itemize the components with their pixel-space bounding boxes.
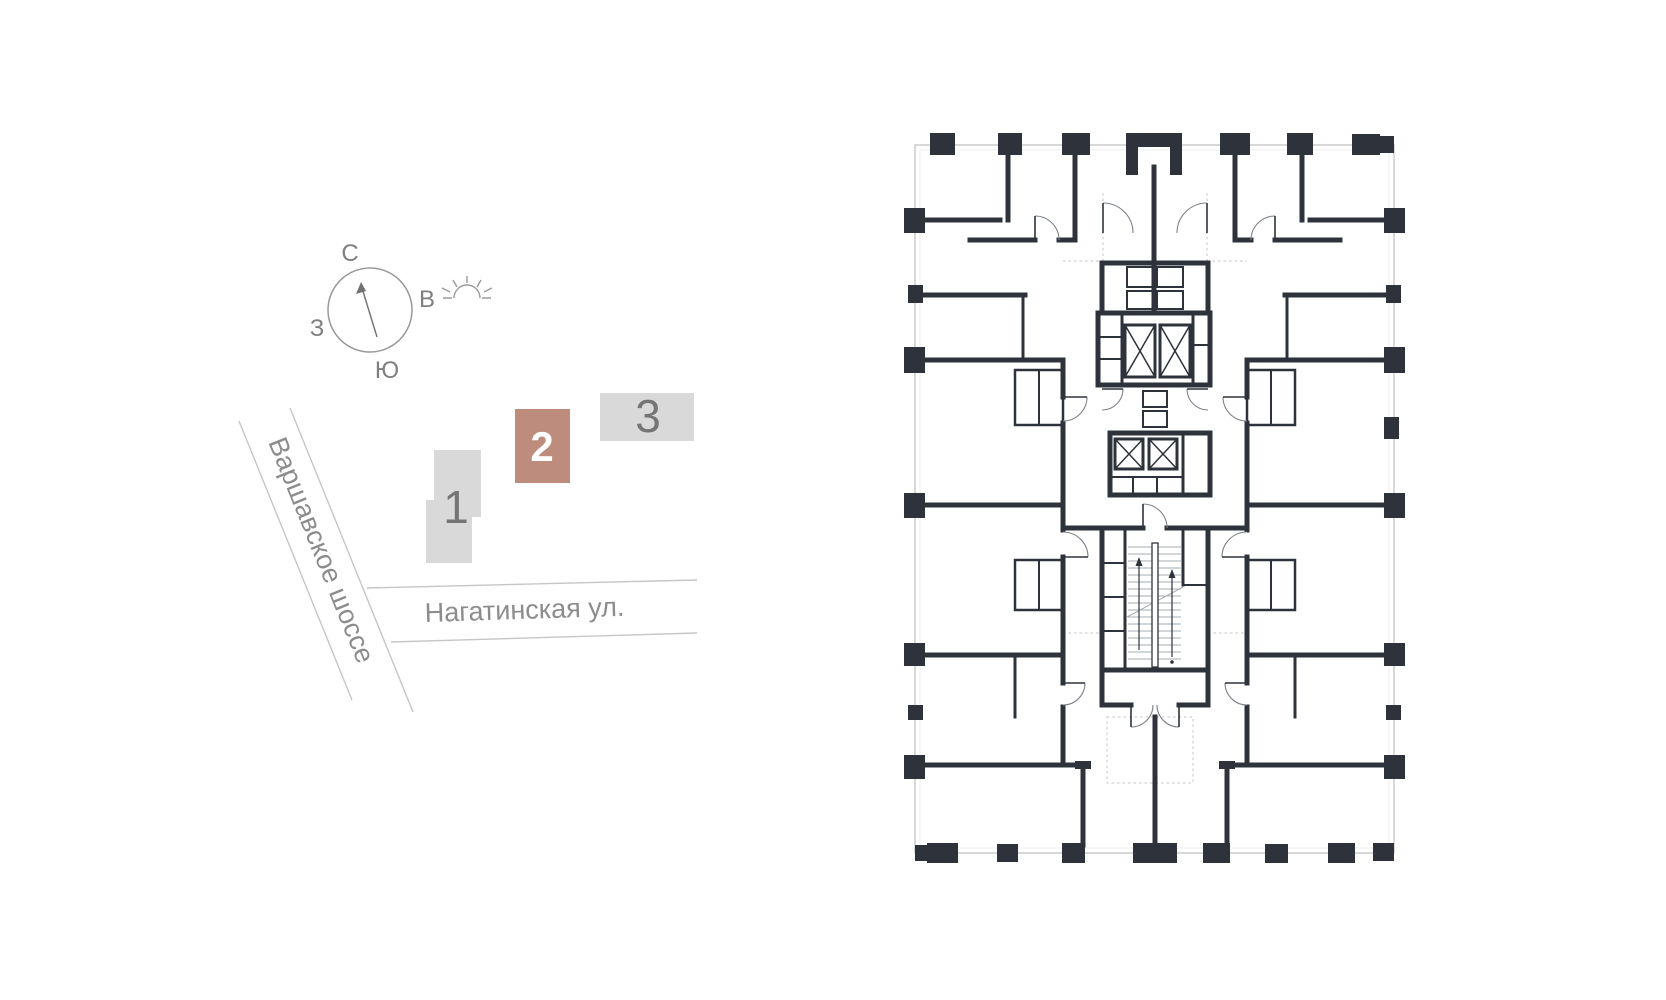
street-label-nagatinskaya: Нагатинская ул.: [424, 592, 625, 628]
street-nagatinskaya-south-edge: [391, 633, 697, 642]
stairs: [1127, 543, 1183, 667]
minimap: С В З Ю Варшавское шоссе Нагатинская ул.…: [239, 240, 697, 712]
street-label-varshavskoe: Варшавское шоссе: [262, 433, 380, 667]
floor-plan: [904, 133, 1405, 863]
elevator-shafts: [1115, 325, 1190, 469]
compass-west-label: З: [310, 315, 325, 342]
compass: С В З Ю: [310, 240, 435, 384]
scene: С В З Ю Варшавское шоссе Нагатинская ул.…: [0, 0, 1666, 1000]
street-nagatinskaya-north-edge: [367, 580, 697, 588]
stair-stringer: [1152, 543, 1158, 667]
building-1-label: 1: [443, 481, 469, 533]
building-3-label: 3: [635, 390, 661, 442]
sunrise-icon: [442, 276, 492, 298]
building-marker-2-selected[interactable]: 2: [515, 409, 570, 483]
compass-north-label: С: [341, 240, 358, 267]
compass-east-label: В: [419, 286, 435, 313]
street-varshavskoe-east-edge: [290, 408, 413, 712]
compass-south-label: Ю: [375, 357, 399, 384]
building-2-label: 2: [530, 423, 553, 470]
compass-needle: [362, 288, 377, 337]
building-marker-3[interactable]: 3: [600, 390, 694, 442]
page: С В З Ю Варшавское шоссе Нагатинская ул.…: [0, 0, 1666, 1000]
compass-needle-head: [356, 282, 366, 294]
plan-bearing-walls: [915, 145, 1394, 845]
building-marker-1[interactable]: 1: [426, 450, 481, 563]
genplan-buildings: 1 2 3: [426, 390, 694, 563]
compass-circle: [328, 268, 412, 352]
elevator-shaft-icon: [1115, 325, 1190, 469]
